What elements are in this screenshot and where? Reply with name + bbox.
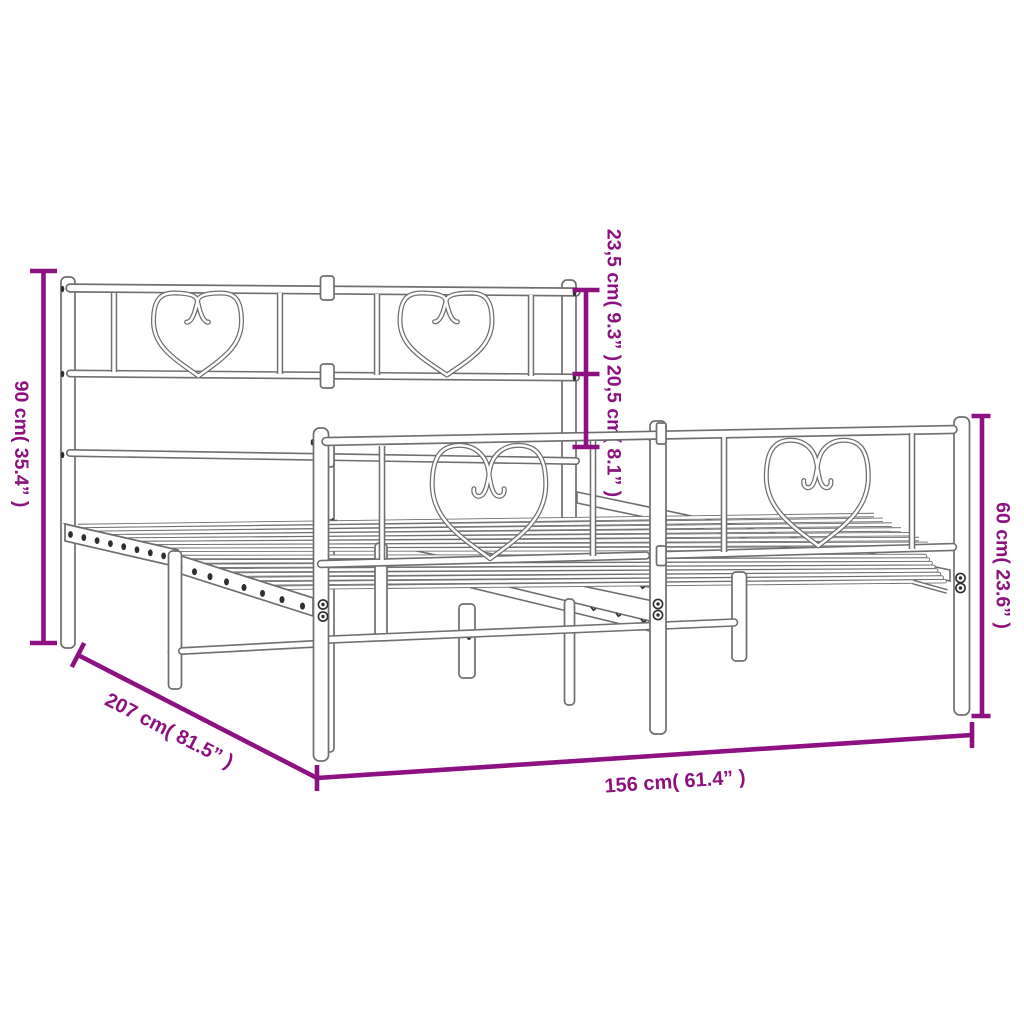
svg-text:20,5 cm( 8.1” ): 20,5 cm( 8.1” ) (603, 365, 625, 497)
svg-text:60 cm( 23.6” ): 60 cm( 23.6” ) (992, 502, 1014, 629)
svg-text:23,5 cm( 9.3” ): 23,5 cm( 9.3” ) (603, 229, 625, 361)
svg-text:90 cm( 35.4” ): 90 cm( 35.4” ) (10, 381, 32, 508)
